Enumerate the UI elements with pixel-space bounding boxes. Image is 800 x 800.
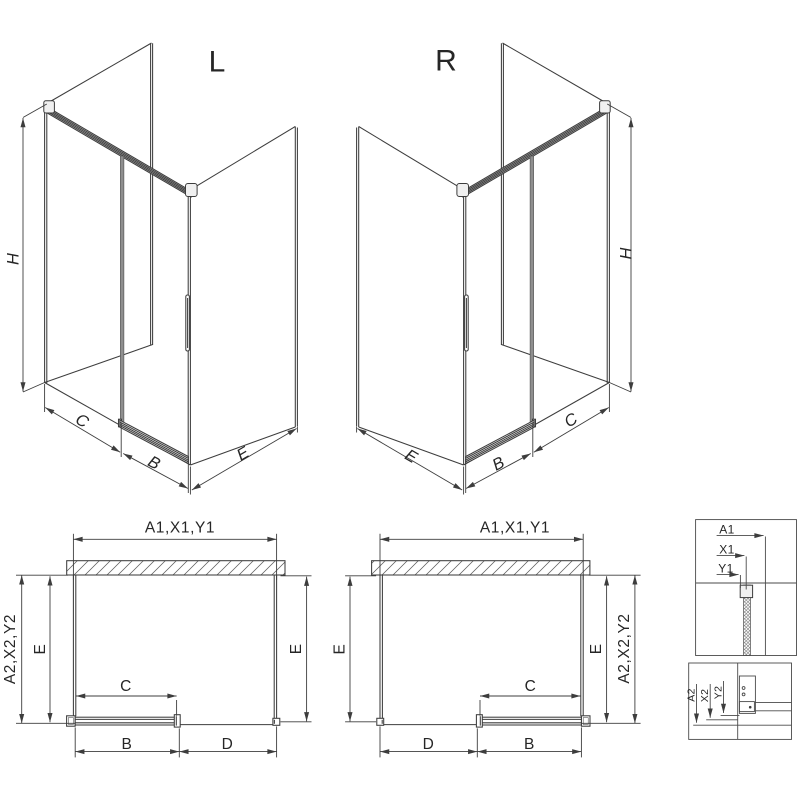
plan-left-depth-label: A2,X2,Y2 <box>2 614 19 684</box>
plan-right-side-left-label: E <box>332 644 349 655</box>
plan-right-side-right-label: E <box>588 643 605 654</box>
iso-view-geometry <box>23 43 297 495</box>
iso-view-right-geometry <box>357 43 631 495</box>
plan-right-depth-label: A2,X2,Y2 <box>616 613 633 683</box>
iso-left-side-label: E <box>234 443 253 465</box>
detail-x2-label: X2 <box>699 689 711 702</box>
wall-hatch-left-plan <box>67 561 285 575</box>
shower-enclosure-technical-drawing: L H C B E R H E B C A1,X1,Y1 A2,X2,Y2 E … <box>0 0 800 800</box>
detail-y2-label: Y2 <box>713 686 725 699</box>
drawing-canvas: L H C B E R H E B C A1,X1,Y1 A2,X2,Y2 E … <box>0 0 800 800</box>
iso-right-fixed-label: C <box>561 410 581 432</box>
iso-right-door-label: B <box>489 453 507 474</box>
plan-right-door-label: C <box>525 678 537 695</box>
detail-box-width-refs <box>696 520 797 656</box>
plan-left-door-label: C <box>120 678 132 695</box>
iso-right-height-label: H <box>618 247 636 259</box>
plan-right-rail-label: B <box>524 736 535 753</box>
plan-left-side-left-label: E <box>32 644 49 655</box>
iso-left-height-label: H <box>5 253 23 265</box>
plan-left-opening-label: D <box>222 736 234 753</box>
detail-x1-label: X1 <box>719 543 734 557</box>
detail-a1-label: A1 <box>719 523 734 537</box>
door-leading-edge <box>120 156 124 422</box>
plan-right-opening-label: D <box>423 736 435 753</box>
iso-left-fixed-label: C <box>72 410 92 432</box>
detail-a2-label: A2 <box>686 688 698 701</box>
plan-left-width-label: A1,X1,Y1 <box>145 520 215 537</box>
plan-right-width-label: A1,X1,Y1 <box>480 520 550 537</box>
plan-left-side-right-label: E <box>288 643 305 654</box>
plan-left-rail-label: B <box>122 736 133 753</box>
detail-y1-label: Y1 <box>718 562 733 576</box>
variant-letter-left: L <box>209 46 226 79</box>
iso-left-door-label: B <box>145 452 163 473</box>
variant-letter-right: R <box>435 45 457 78</box>
wall-hatch-right-plan <box>372 561 590 575</box>
